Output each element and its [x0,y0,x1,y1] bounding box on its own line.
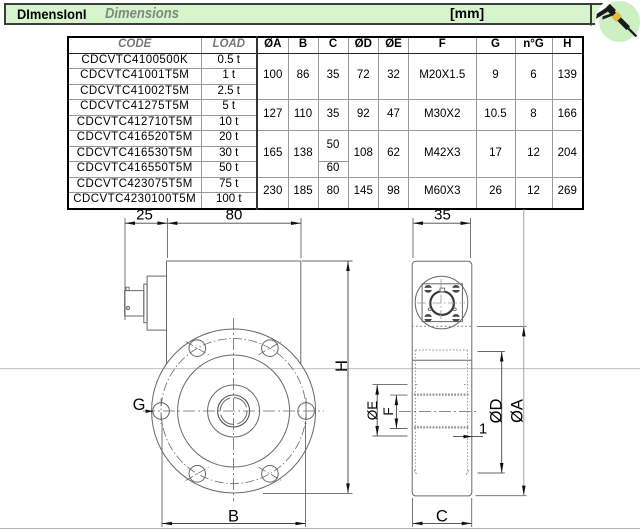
svg-text:35: 35 [434,207,451,224]
svg-text:B: B [228,508,239,526]
svg-text:H: H [333,360,351,372]
svg-text:G: G [133,396,146,414]
svg-text:ØD: ØD [487,399,505,424]
svg-text:ØE: ØE [365,401,380,421]
svg-text:80: 80 [226,207,243,224]
svg-text:ØA: ØA [508,399,526,423]
svg-text:C: C [436,508,448,526]
svg-text:F: F [381,407,396,415]
svg-text:1: 1 [479,421,487,438]
svg-text:25: 25 [136,207,153,224]
